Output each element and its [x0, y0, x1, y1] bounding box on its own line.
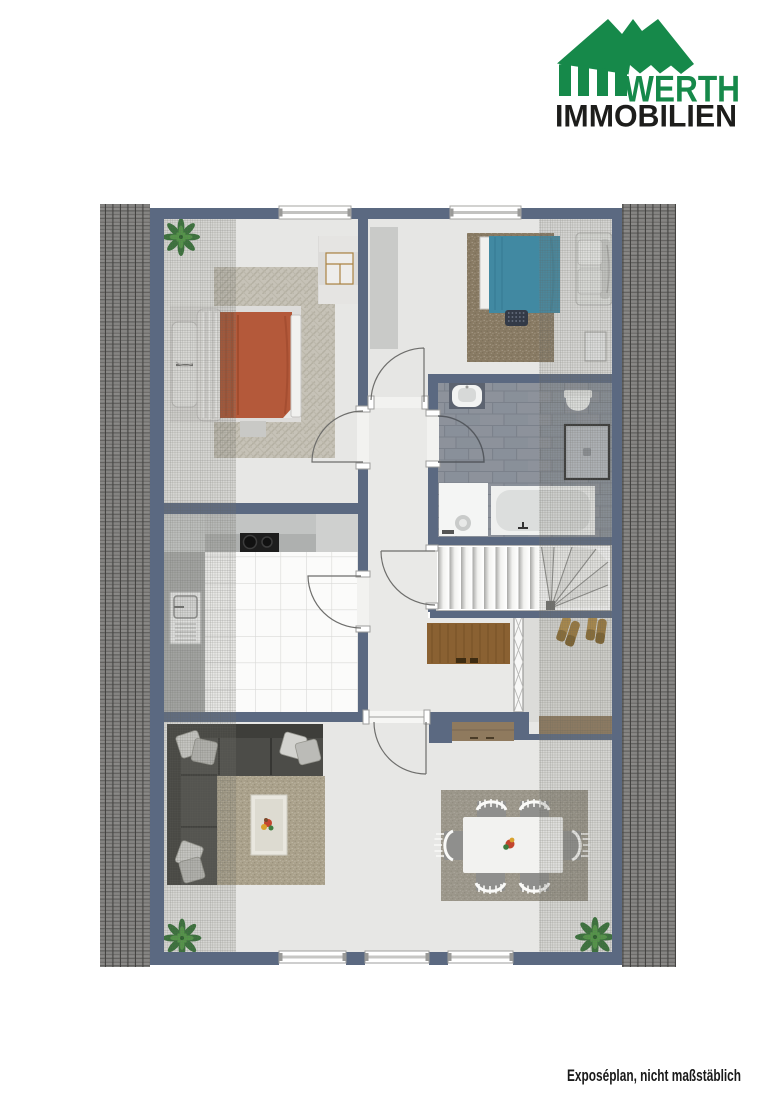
svg-text:IMMOBILIEN: IMMOBILIEN: [555, 98, 737, 134]
svg-text:Exposéplan, nicht maßstäblich: Exposéplan, nicht maßstäblich: [567, 1066, 741, 1085]
